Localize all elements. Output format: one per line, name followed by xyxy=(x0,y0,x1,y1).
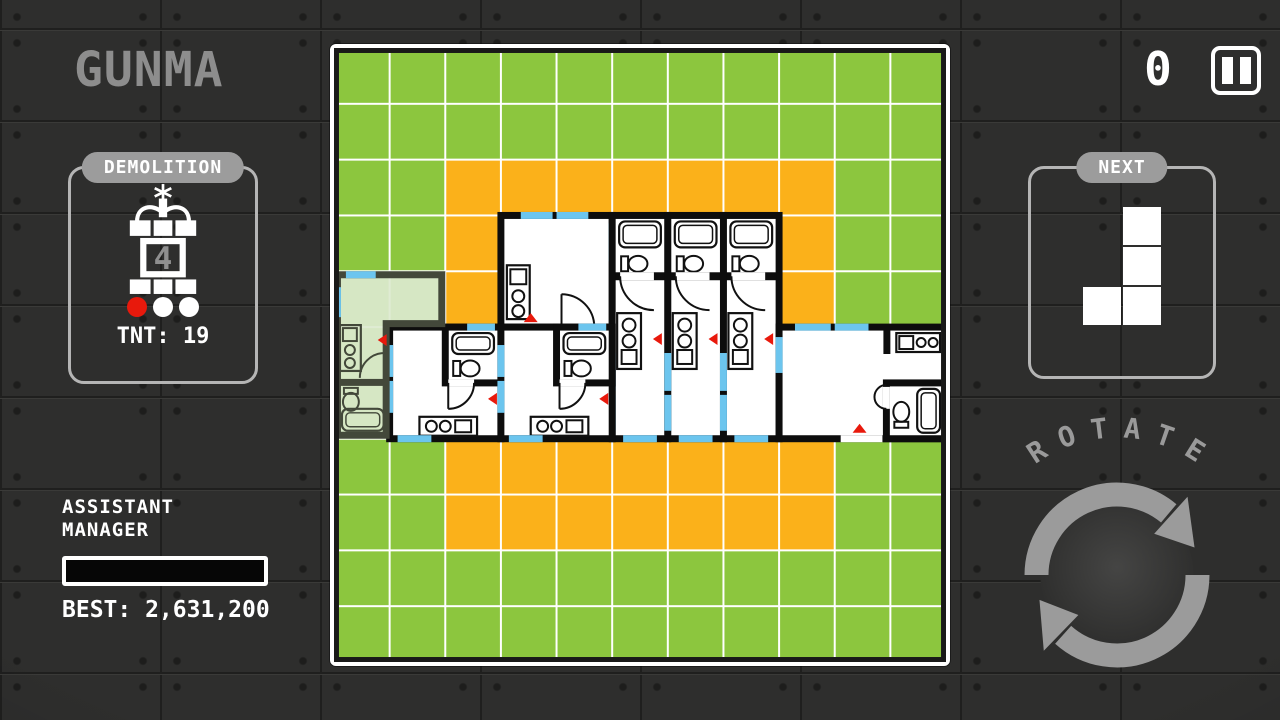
charge-dot xyxy=(127,297,147,317)
wide-apartment-unit xyxy=(776,324,946,443)
next-badge: NEXT xyxy=(1076,152,1167,183)
demolition-badge: DEMOLITION xyxy=(82,152,244,183)
tnt-count-label: TNT: 19 xyxy=(71,324,255,349)
charge-dot xyxy=(153,297,173,317)
demolition-panel: DEMOLITION 4 TNT: 19 xyxy=(68,166,258,384)
next-piece-block xyxy=(1123,247,1161,285)
tnt-bomb-icon: 4 xyxy=(115,183,211,295)
micro-apartment-unit xyxy=(609,215,668,442)
best-score-label: BEST: 2,631,200 xyxy=(62,597,270,623)
board-svg xyxy=(334,48,946,662)
rotate-arrows-icon xyxy=(1002,460,1232,690)
charge-dots xyxy=(71,297,255,317)
game-title: GUNMA xyxy=(74,42,224,98)
next-piece-block xyxy=(1083,287,1121,325)
flat-apartment-unit xyxy=(497,324,612,443)
next-piece-block xyxy=(1123,287,1161,325)
rank-title-line2: MANAGER xyxy=(62,519,149,541)
rotate-letter: A xyxy=(1122,412,1142,447)
rank-status: ASSISTANT MANAGER BEST: 2,631,200 xyxy=(62,496,270,623)
next-piece xyxy=(1083,207,1161,325)
rotate-letter: T xyxy=(1152,418,1179,455)
flat-apartment-unit xyxy=(386,324,501,443)
rotate-letter: O xyxy=(1053,418,1080,455)
next-panel: NEXT xyxy=(1028,166,1216,379)
charge-dot xyxy=(179,297,199,317)
studio-apartment-unit xyxy=(501,212,616,331)
rank-title-line1: ASSISTANT xyxy=(62,496,174,518)
pause-icon xyxy=(1222,57,1233,84)
pause-button[interactable] xyxy=(1211,46,1261,95)
game-screen: { "title": "GUNMA", "hud": { "score": "0… xyxy=(0,0,1280,720)
bomb-capacity-count: 4 xyxy=(154,241,173,277)
next-piece-block xyxy=(1123,207,1161,245)
score-value: 0 xyxy=(1128,42,1188,96)
rank-progress-bar xyxy=(62,556,268,586)
rotate-letter: T xyxy=(1089,412,1110,447)
micro-apartment-unit xyxy=(720,215,779,442)
micro-apartment-unit xyxy=(664,215,723,442)
game-board[interactable] xyxy=(330,44,950,666)
rotate-button[interactable]: ROTATE xyxy=(1002,460,1232,690)
